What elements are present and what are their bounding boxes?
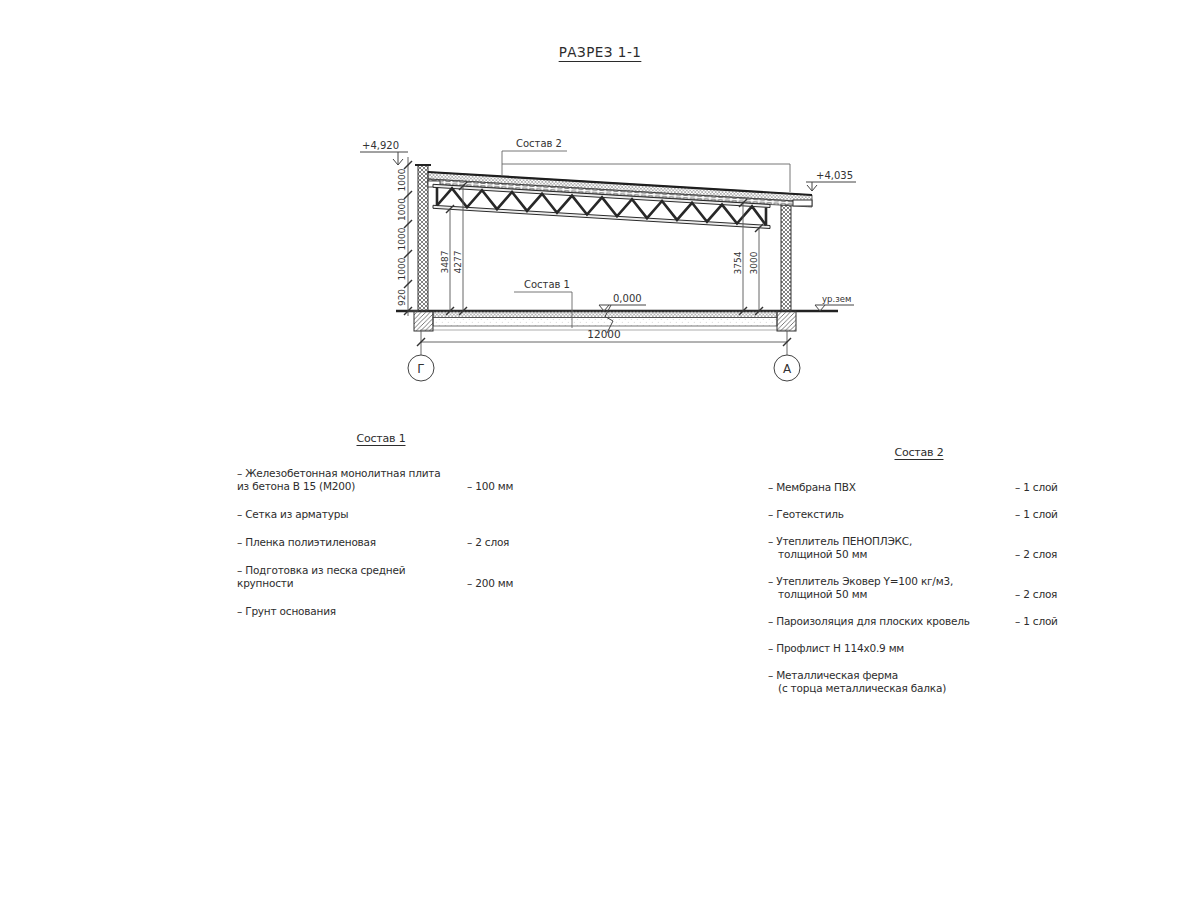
- dim-left-3: 1000: [397, 227, 407, 250]
- material-list-item: – Мембрана ПВХ – 1 слой: [768, 481, 1070, 494]
- elevation-mark-roof-right: +4,035: [806, 170, 856, 191]
- elevation-parapet-value: +4,920: [362, 140, 399, 151]
- sostav1-list: – Железобетонная монолитная плита из бет…: [237, 467, 525, 618]
- material-list-item: – Утеплитель Эковер Y=100 кг/м3, толщино…: [768, 575, 1070, 601]
- material-value: – 100 мм: [467, 480, 525, 493]
- elevation-mark-ground: ур.зем: [815, 294, 854, 311]
- material-value: – 1 слой: [1015, 508, 1070, 521]
- material-list-item: – Геотекстиль – 1 слой: [768, 508, 1070, 521]
- dim-left-2: 1000: [397, 198, 407, 221]
- material-name-line2: толщиной 50 мм: [768, 548, 1009, 561]
- material-name: – Мембрана ПВХ: [768, 481, 1009, 494]
- material-value: – 200 мм: [467, 577, 525, 590]
- axis-marker-right: А: [774, 355, 800, 381]
- material-value: – 1 слой: [1015, 615, 1070, 628]
- material-name: – Геотекстиль: [768, 508, 1009, 521]
- elevation-floor-value: 0,000: [613, 293, 642, 304]
- dimension-chain-left: 1000 1000 1000 1000 920: [397, 157, 418, 316]
- foundation-left: [414, 311, 433, 331]
- material-name-line2: толщиной 50 мм: [768, 588, 1009, 601]
- material-name: – Утеплитель Эковер Y=100 кг/м3,: [768, 575, 1009, 588]
- material-name: – Грунт основания: [237, 605, 519, 618]
- elevation-roof-right-value: +4,035: [816, 170, 853, 181]
- material-list-item: – Профлист Н 114х0.9 мм: [768, 642, 1070, 655]
- dim-left-1: 1000: [397, 168, 407, 191]
- material-name-line2: из бетона В 15 (М200): [237, 480, 461, 493]
- drawing-title: РАЗРЕЗ 1-1: [500, 44, 700, 60]
- sostav1-title: Состав 1: [237, 432, 525, 445]
- material-list-item: – Железобетонная монолитная плита из бет…: [237, 467, 525, 493]
- ground-level-label: ур.зем: [822, 294, 851, 304]
- dim-height-3487: 3487: [440, 251, 450, 274]
- axis-letter-left: Г: [417, 362, 424, 376]
- material-name-line2: (с торца металлическая балка): [768, 682, 1064, 695]
- dim-left-4: 1000: [397, 257, 407, 280]
- material-value: – 1 слой: [1015, 481, 1070, 494]
- dim-height-4277: 4277: [453, 251, 463, 274]
- sostav2-title: Состав 2: [768, 446, 1070, 459]
- material-list-item: – Сетка из арматуры: [237, 508, 525, 521]
- material-name: – Железобетонная монолитная плита: [237, 467, 461, 480]
- foundation-right: [777, 311, 796, 331]
- material-name: – Пленка полиэтиленовая: [237, 536, 461, 549]
- material-name: – Сетка из арматуры: [237, 508, 519, 521]
- sostav1-panel: Состав 1 – Железобетонная монолитная пли…: [237, 432, 525, 633]
- material-name: – Утеплитель ПЕНОПЛЭКС,: [768, 535, 1009, 548]
- dimension-heights-left: 3487 4277: [440, 182, 467, 315]
- material-list-item: – Утеплитель ПЕНОПЛЭКС, толщиной 50 мм –…: [768, 535, 1070, 561]
- material-name: – Пароизоляция для плоских кровель: [768, 615, 1009, 628]
- leader-sostav2-label: Состав 2: [516, 138, 562, 149]
- dim-span-value: 12000: [587, 328, 620, 340]
- material-list-item: – Пароизоляция для плоских кровель – 1 с…: [768, 615, 1070, 628]
- wall-right: [781, 205, 791, 311]
- drawing-sheet: РАЗРЕЗ 1-1: [0, 0, 1200, 900]
- material-list-item: – Металлическая ферма (с торца металличе…: [768, 669, 1070, 695]
- elevation-mark-parapet: +4,920: [360, 140, 408, 165]
- material-list-item: – Пленка полиэтиленовая – 2 слоя: [237, 536, 525, 549]
- dim-height-3000: 3000: [749, 251, 759, 274]
- material-list-item: – Подготовка из песка средней крупности …: [237, 564, 525, 590]
- dim-height-3754: 3754: [733, 251, 743, 274]
- leader-sostav1-label: Состав 1: [524, 279, 570, 290]
- material-value: – 2 слоя: [1015, 548, 1070, 561]
- material-name: – Подготовка из песка средней крупности: [237, 564, 461, 590]
- dim-left-5: 920: [397, 289, 407, 306]
- axis-letter-right: А: [783, 362, 792, 376]
- elevation-mark-floor: 0,000: [599, 293, 646, 311]
- sostav2-list: – Мембрана ПВХ – 1 слой – Геотекстиль – …: [768, 481, 1070, 695]
- axis-marker-left: Г: [408, 355, 434, 381]
- material-list-item: – Грунт основания: [237, 605, 525, 618]
- material-value: – 2 слоя: [467, 536, 525, 549]
- sostav2-panel: Состав 2 – Мембрана ПВХ – 1 слой – Геоте…: [768, 446, 1070, 709]
- material-name: – Профлист Н 114х0.9 мм: [768, 642, 1064, 655]
- roof-edge-beam: [793, 200, 812, 206]
- material-name: – Металлическая ферма: [768, 669, 1064, 682]
- dimension-span: 12000: [417, 328, 791, 355]
- material-value: – 2 слоя: [1015, 588, 1070, 601]
